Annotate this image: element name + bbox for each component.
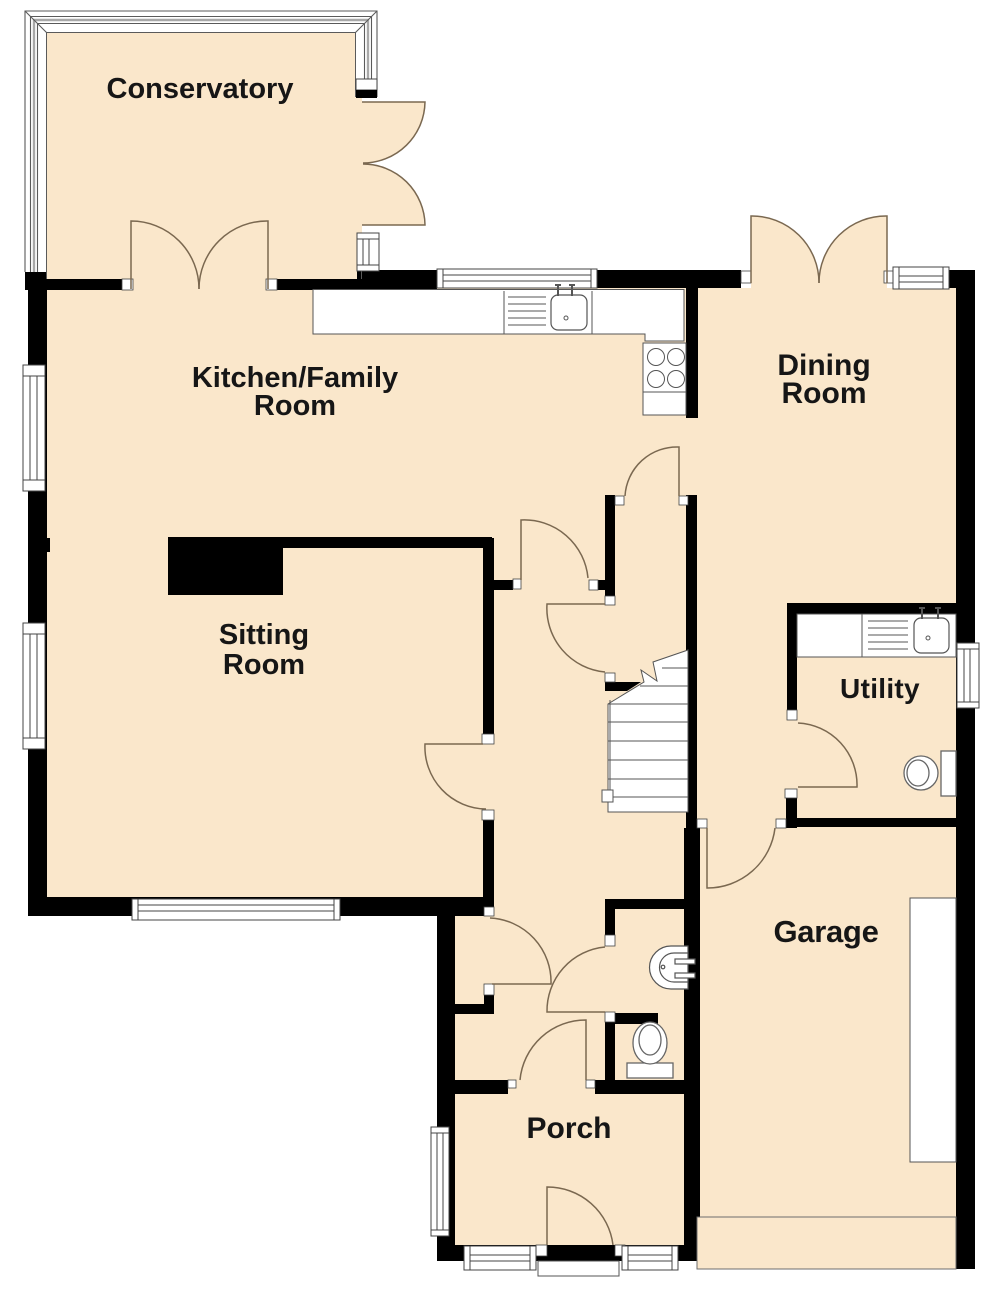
svg-text:Garage: Garage bbox=[773, 914, 878, 949]
svg-text:Room: Room bbox=[782, 377, 867, 410]
svg-text:Room: Room bbox=[254, 390, 336, 422]
svg-text:Porch: Porch bbox=[526, 1112, 611, 1145]
svg-text:Room: Room bbox=[223, 649, 305, 681]
svg-text:Utility: Utility bbox=[840, 673, 920, 704]
svg-text:Sitting: Sitting bbox=[219, 619, 309, 651]
svg-text:Conservatory: Conservatory bbox=[107, 73, 294, 105]
